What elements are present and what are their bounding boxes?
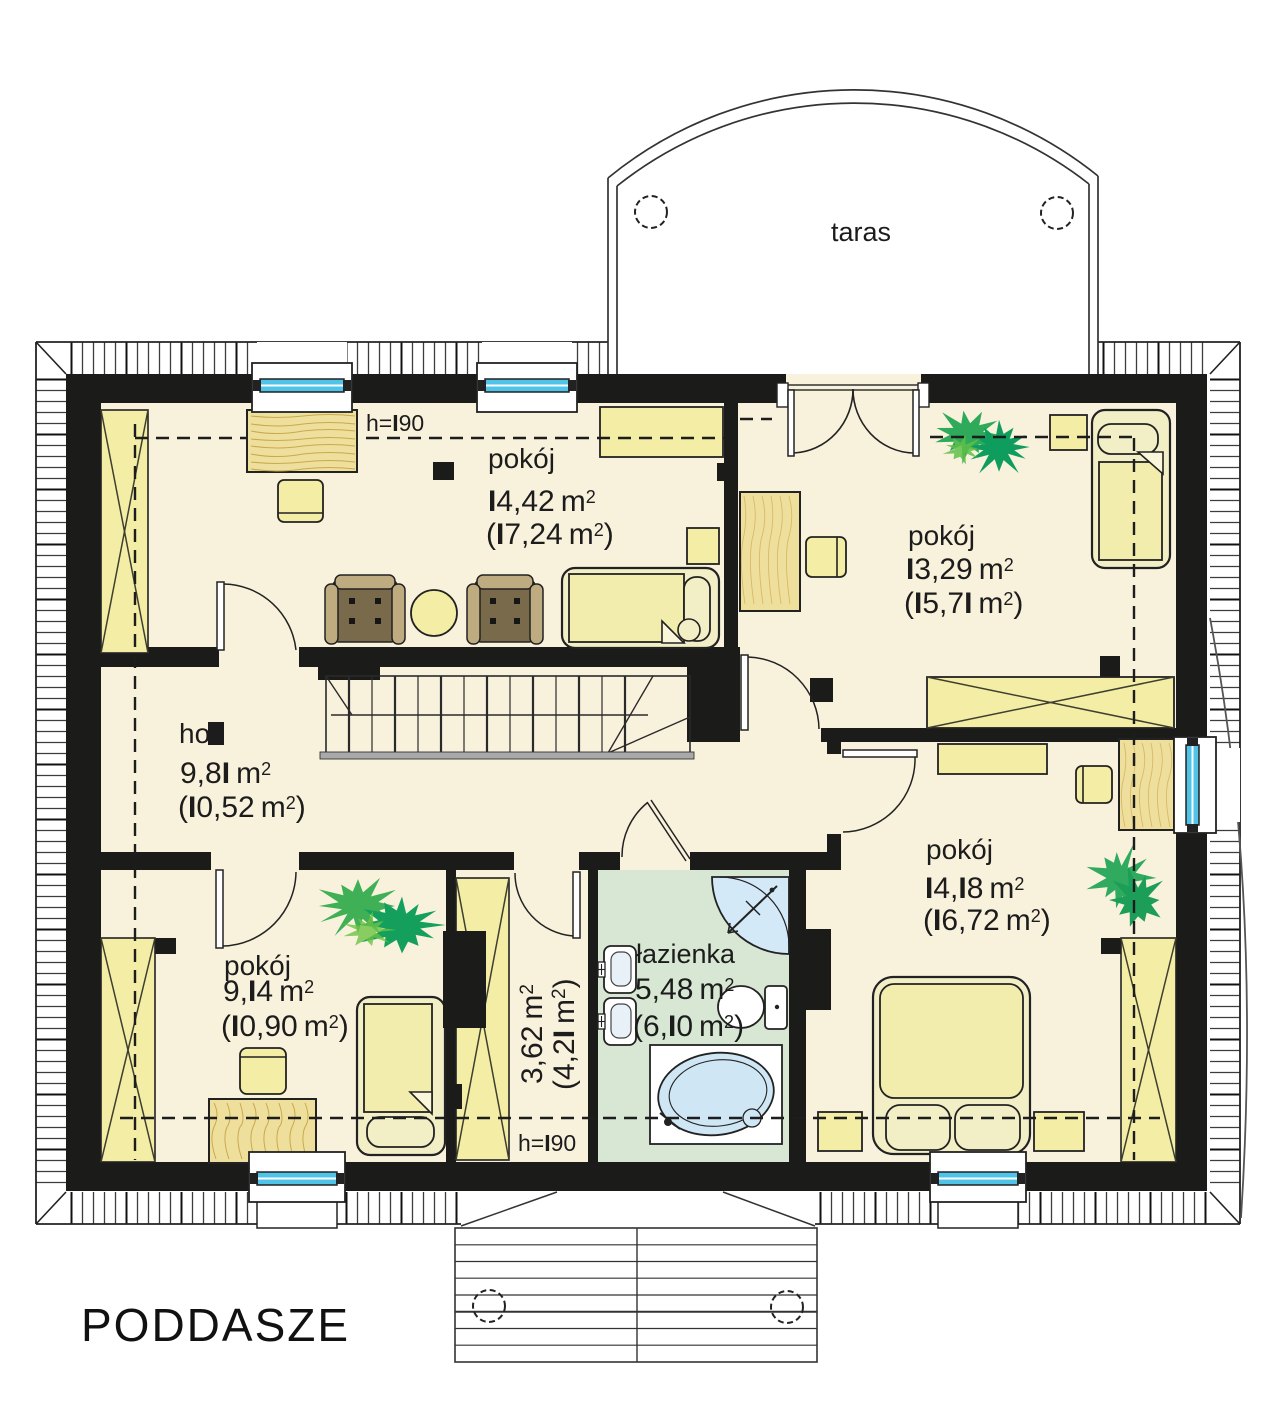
- svg-text:h=I90: h=I90: [518, 1130, 576, 1156]
- svg-text:h=I90: h=I90: [366, 410, 424, 436]
- svg-text:ho: ho: [179, 718, 210, 749]
- svg-text:9,8I m2: 9,8I m2: [180, 757, 271, 790]
- svg-text:9,I4 m2: 9,I4 m2: [223, 975, 314, 1008]
- svg-text:pokój: pokój: [926, 834, 993, 865]
- svg-text:5,48 m2: 5,48 m2: [635, 973, 734, 1006]
- svg-text:pokój: pokój: [488, 443, 555, 474]
- svg-text:I3,29 m2: I3,29 m2: [906, 553, 1014, 586]
- svg-text:łazienka: łazienka: [636, 939, 736, 969]
- svg-text:taras: taras: [831, 217, 891, 247]
- svg-text:pokój: pokój: [908, 520, 975, 551]
- svg-text:3,62 m2: 3,62 m2: [516, 984, 549, 1084]
- svg-text:I4,42 m2: I4,42 m2: [488, 485, 596, 518]
- svg-text:I4,I8 m2: I4,I8 m2: [925, 872, 1024, 905]
- svg-text:PODDASZE: PODDASZE: [81, 1299, 350, 1351]
